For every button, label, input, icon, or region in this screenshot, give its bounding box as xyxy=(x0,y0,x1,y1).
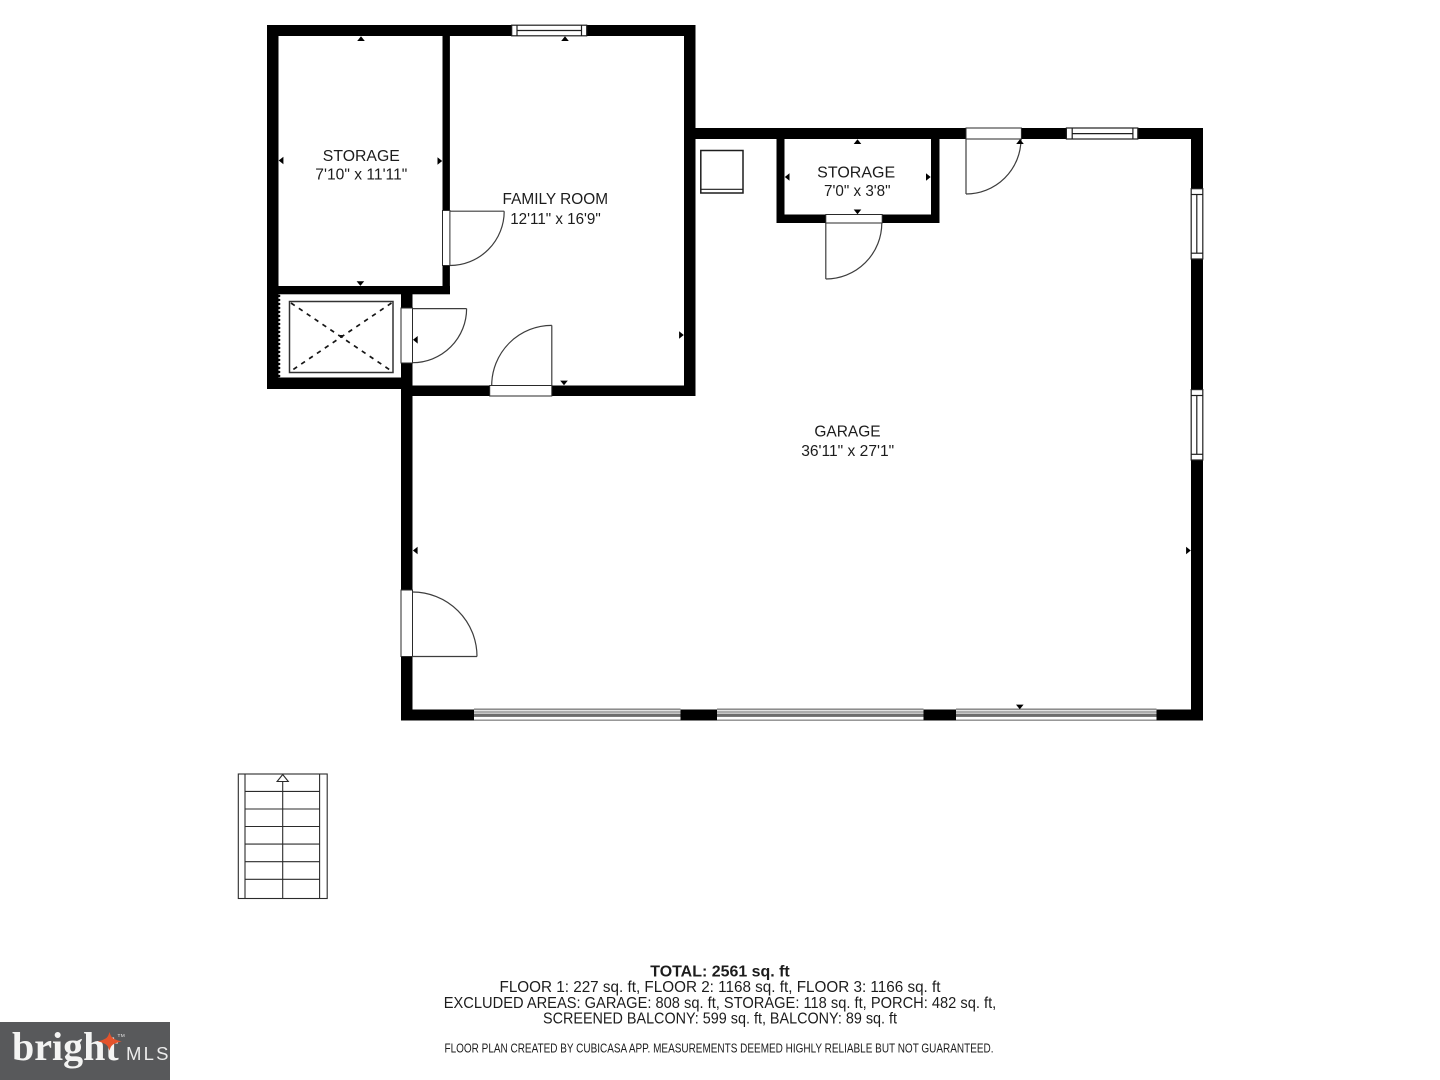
svg-text:36'11" x 27'1": 36'11" x 27'1" xyxy=(801,443,894,460)
svg-text:EXCLUDED AREAS: GARAGE: 808 sq: EXCLUDED AREAS: GARAGE: 808 sq. ft, STOR… xyxy=(444,995,997,1012)
svg-text:SCREENED BALCONY: 599 sq. ft,: SCREENED BALCONY: 599 sq. ft, BALCONY: 8… xyxy=(543,1011,898,1028)
svg-text:MLS: MLS xyxy=(126,1043,171,1064)
svg-text:STORAGE: STORAGE xyxy=(817,165,895,182)
svg-text:12'11" x 16'9": 12'11" x 16'9" xyxy=(510,211,601,228)
svg-text:GARAGE: GARAGE xyxy=(814,424,880,441)
svg-text:FLOOR PLAN CREATED BY CUBICASA: FLOOR PLAN CREATED BY CUBICASA APP. MEAS… xyxy=(445,1042,994,1056)
svg-text:STORAGE: STORAGE xyxy=(323,148,400,165)
svg-text:TM: TM xyxy=(118,1033,126,1039)
svg-text:TOTAL: 2561 sq. ft: TOTAL: 2561 sq. ft xyxy=(650,964,790,981)
svg-text:bright: bright xyxy=(12,1024,119,1069)
svg-text:FAMILY ROOM: FAMILY ROOM xyxy=(503,191,609,208)
svg-text:7'10" x 11'11": 7'10" x 11'11" xyxy=(315,167,407,184)
svg-text:FLOOR 1: 227 sq. ft, FLOOR 2:: FLOOR 1: 227 sq. ft, FLOOR 2: 1168 sq. f… xyxy=(500,979,942,996)
svg-text:7'0" x 3'8": 7'0" x 3'8" xyxy=(824,183,891,200)
